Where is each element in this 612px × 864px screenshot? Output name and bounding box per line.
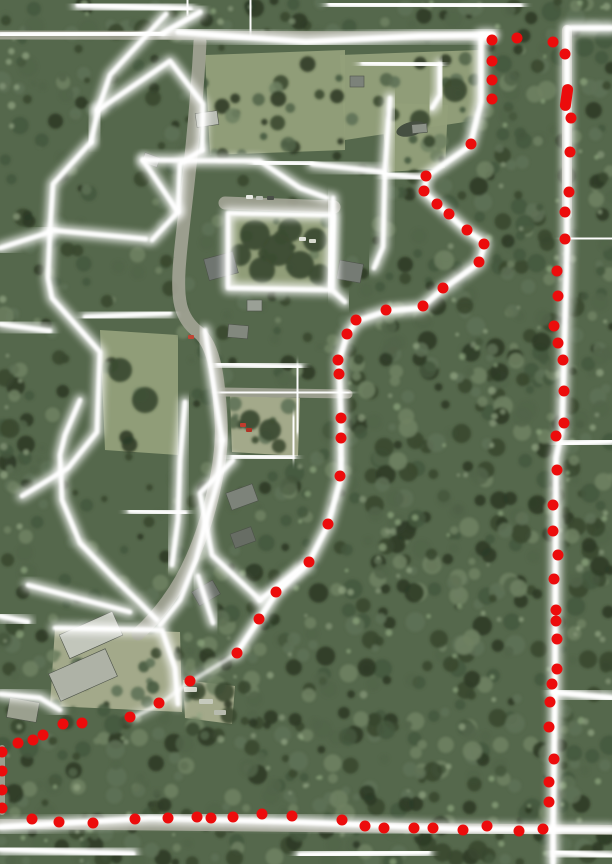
boundary-dot-marker <box>553 338 564 349</box>
boundary-dot-marker <box>54 817 65 828</box>
boundary-dot-marker <box>232 648 243 659</box>
boundary-dot-marker <box>13 738 24 749</box>
boundary-dot-marker <box>549 321 560 332</box>
boundary-dot-marker <box>553 291 564 302</box>
boundary-dot-marker <box>545 697 556 708</box>
boundary-dot-marker <box>27 814 38 825</box>
boundary-dot-marker <box>560 207 571 218</box>
boundary-dot-marker <box>351 315 362 326</box>
boundary-dot-marker <box>552 664 563 675</box>
tree-clump <box>249 257 275 283</box>
boundary-dot-marker <box>125 712 136 723</box>
road-surface <box>225 203 334 207</box>
boundary-dot-marker <box>206 813 217 824</box>
boundary-dot-marker <box>512 33 523 44</box>
boundary-dot-marker <box>334 369 345 380</box>
tree-clump <box>108 358 132 382</box>
road-line <box>567 238 612 239</box>
boundary-dot-marker <box>551 616 562 627</box>
boundary-dot-marker <box>552 465 563 476</box>
boundary-dot-marker <box>487 94 498 105</box>
vehicle <box>309 239 316 243</box>
vehicle <box>256 196 263 200</box>
boundary-dot-marker <box>558 355 569 366</box>
road-line <box>250 1 251 29</box>
house-roof <box>227 324 248 339</box>
boundary-dot-marker <box>548 500 559 511</box>
boundary-dot-marker <box>360 821 371 832</box>
vehicle <box>188 335 194 339</box>
boundary-dot-marker <box>552 266 563 277</box>
boundary-dot-marker <box>432 199 443 210</box>
boundary-dot-marker <box>192 812 203 823</box>
tree-clump <box>259 419 281 441</box>
boundary-dot-marker <box>438 283 449 294</box>
boundary-dot-marker <box>547 679 558 690</box>
boundary-dot-marker <box>419 186 430 197</box>
boundary-dot-marker <box>379 823 390 834</box>
boundary-dot-marker <box>514 826 525 837</box>
vehicle <box>199 699 213 704</box>
boundary-dot-marker <box>130 814 141 825</box>
road-line <box>187 0 188 12</box>
parcel-line <box>363 63 440 65</box>
boundary-dot-marker <box>548 526 559 537</box>
boundary-dot-marker <box>342 329 353 340</box>
road-line <box>560 441 612 444</box>
boundary-dot-marker <box>38 730 49 741</box>
boundary-dot-marker <box>409 823 420 834</box>
boundary-dot-marker <box>560 234 571 245</box>
boundary-dot-marker <box>257 809 268 820</box>
aerial-parcel-map[interactable] <box>0 0 612 864</box>
boundary-dot-marker <box>304 557 315 568</box>
boundary-dot-marker <box>77 718 88 729</box>
vehicle <box>214 710 226 715</box>
boundary-dot-marker <box>479 239 490 250</box>
boundary-dot-marker <box>336 413 347 424</box>
boundary-dot-marker <box>337 815 348 826</box>
parcel-line <box>222 392 348 393</box>
boundary-dot-marker <box>487 35 498 46</box>
boundary-dot-marker <box>287 811 298 822</box>
boundary-dot-marker <box>559 386 570 397</box>
boundary-dot-marker <box>549 754 560 765</box>
boundary-dot-marker <box>228 812 239 823</box>
aerial-map-viewport <box>0 0 612 864</box>
parcel-line <box>233 456 293 458</box>
vehicle <box>240 423 246 427</box>
vehicle <box>299 237 306 241</box>
boundary-dot-marker <box>154 698 165 709</box>
boundary-dot-marker <box>381 305 392 316</box>
boundary-dot-marker <box>333 355 344 366</box>
road-line <box>300 852 428 855</box>
parcel-line <box>297 367 298 431</box>
boundary-dot-marker <box>458 825 469 836</box>
boundary-dot-marker <box>323 519 334 530</box>
boundary-dot-marker <box>428 823 439 834</box>
boundary-dot-marker <box>544 797 555 808</box>
tree-clump <box>443 78 467 102</box>
boundary-dot-marker <box>336 433 347 444</box>
boundary-dot-marker <box>418 301 429 312</box>
parcel-line <box>293 418 294 457</box>
parcel-line <box>255 162 312 164</box>
boundary-dot-marker <box>462 225 473 236</box>
boundary-dot-marker <box>185 676 196 687</box>
boundary-dot-marker <box>271 587 282 598</box>
boundary-dot-marker <box>28 735 39 746</box>
road-line <box>330 4 520 6</box>
house-roof <box>412 123 428 133</box>
road-line <box>0 33 163 35</box>
boundary-dot-marker <box>548 37 559 48</box>
boundary-dot-marker <box>544 777 555 788</box>
house-roof <box>247 300 262 311</box>
boundary-dot-marker <box>552 634 563 645</box>
boundary-dot-marker <box>549 574 560 585</box>
house-roof <box>337 260 364 283</box>
boundary-dot-marker <box>421 171 432 182</box>
boundary-dot-marker <box>553 550 564 561</box>
boundary-dot-marker <box>254 614 265 625</box>
boundary-dot-marker <box>559 418 570 429</box>
boundary-dot-marker <box>88 818 99 829</box>
boundary-dot-marker <box>566 113 577 124</box>
boundary-dot-marker <box>565 147 576 158</box>
boundary-dot-marker <box>482 821 493 832</box>
tree-clump <box>278 218 302 242</box>
boundary-dot-marker <box>544 722 555 733</box>
boundary-dot-marker <box>466 139 477 150</box>
boundary-dot-marker <box>444 209 455 220</box>
vehicle <box>267 196 274 200</box>
boundary-dot-marker <box>163 813 174 824</box>
boundary-dot-marker <box>538 824 549 835</box>
boundary-dot-marker <box>551 431 562 442</box>
boundary-dot-marker <box>335 471 346 482</box>
boundary-dot-marker <box>487 75 498 86</box>
boundary-dot-marker <box>474 257 485 268</box>
boundary-dot-marker <box>560 49 571 60</box>
boundary-dot-marker <box>551 605 562 616</box>
parcel-line <box>218 364 300 367</box>
tree-clump <box>132 387 158 413</box>
vehicle <box>246 195 253 199</box>
boundary-dot-marker <box>564 187 575 198</box>
boundary-dot-marker <box>487 56 498 67</box>
boundary-dot-marker <box>58 719 69 730</box>
